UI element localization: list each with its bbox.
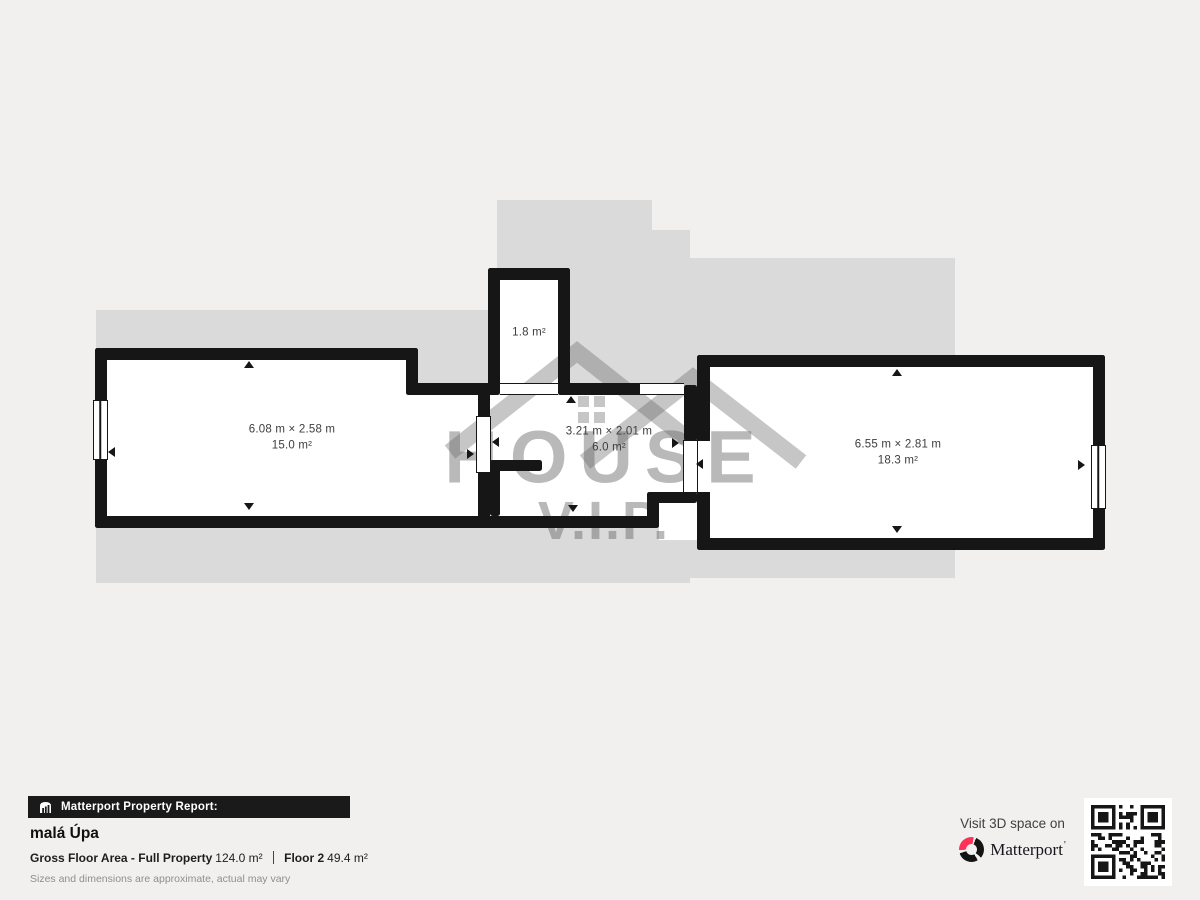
visit-3d-text: Visit 3D space on bbox=[945, 816, 1080, 831]
wall bbox=[684, 385, 697, 441]
window bbox=[1091, 445, 1106, 509]
trademark-tick: ' bbox=[1064, 840, 1066, 851]
room-dimensions: 6.08 m × 2.58 m bbox=[249, 423, 335, 439]
wall bbox=[647, 492, 697, 503]
report-bar-label: Matterport Property Report: bbox=[61, 801, 218, 813]
room-label: 1.8 m² bbox=[512, 325, 546, 341]
matterport-logo-icon bbox=[959, 837, 984, 862]
door-leaf bbox=[476, 416, 491, 473]
wall bbox=[558, 383, 652, 395]
door-arrow-icon bbox=[672, 438, 679, 448]
room-area: 15.0 m² bbox=[249, 438, 335, 454]
property-report-page: HOUSE V.I.P. 6.08 m × 2.58 m 15.0 m² 1.8… bbox=[0, 0, 1200, 900]
window-mullion bbox=[99, 401, 101, 459]
wall bbox=[95, 348, 418, 360]
room-label: 3.21 m × 2.01 m 6.0 m² bbox=[566, 425, 652, 456]
matterport-brand: Matterport' bbox=[945, 837, 1080, 862]
wall bbox=[490, 460, 542, 471]
room-label: 6.08 m × 2.58 m 15.0 m² bbox=[249, 423, 335, 454]
window bbox=[93, 400, 108, 460]
opening-arrow-icon bbox=[892, 526, 902, 533]
brand-name: Matterport bbox=[990, 840, 1063, 859]
gross-floor-area-value: 124.0 m² bbox=[215, 851, 262, 865]
property-name: malá Úpa bbox=[30, 825, 99, 843]
wall bbox=[558, 268, 570, 395]
door-arrow-icon bbox=[492, 437, 499, 447]
wall bbox=[488, 268, 500, 395]
wall bbox=[697, 538, 1105, 550]
wall bbox=[95, 516, 490, 528]
matterport-wordmark: Matterport' bbox=[990, 840, 1066, 860]
gross-floor-area-label: Gross Floor Area - Full Property bbox=[30, 851, 212, 865]
floor-area-value: 49.4 m² bbox=[327, 851, 368, 865]
opening-arrow-icon bbox=[566, 396, 576, 403]
room-area: 1.8 m² bbox=[512, 325, 546, 341]
room-label: 6.55 m × 2.81 m 18.3 m² bbox=[855, 438, 941, 469]
room-area: 6.0 m² bbox=[566, 440, 652, 456]
window-arrow-icon bbox=[1078, 460, 1085, 470]
opening-arrow-icon bbox=[568, 505, 578, 512]
room-dimensions: 3.21 m × 2.01 m bbox=[566, 425, 652, 441]
door-arrow-icon bbox=[467, 449, 474, 459]
property-icon bbox=[38, 800, 53, 815]
stats-divider bbox=[273, 851, 275, 864]
wall bbox=[478, 516, 659, 528]
opening-arrow-icon bbox=[244, 361, 254, 368]
door-opening bbox=[500, 383, 558, 395]
door-arrow-icon bbox=[696, 459, 703, 469]
window-mullion bbox=[1097, 446, 1099, 508]
qr-code bbox=[1084, 798, 1172, 886]
window-arrow-icon bbox=[108, 447, 115, 457]
qr-canvas bbox=[1091, 805, 1165, 879]
wall bbox=[697, 355, 1105, 367]
door-opening bbox=[640, 383, 684, 395]
room-dimensions: 6.55 m × 2.81 m bbox=[855, 438, 941, 454]
disclaimer-text: Sizes and dimensions are approximate, ac… bbox=[30, 873, 290, 885]
opening-arrow-icon bbox=[244, 503, 254, 510]
floor-label: Floor 2 bbox=[284, 851, 324, 865]
opening-arrow-icon bbox=[892, 369, 902, 376]
room-area: 18.3 m² bbox=[855, 453, 941, 469]
area-stats: Gross Floor Area - Full Property124.0 m²… bbox=[30, 851, 368, 865]
report-bar: Matterport Property Report: bbox=[28, 796, 350, 818]
